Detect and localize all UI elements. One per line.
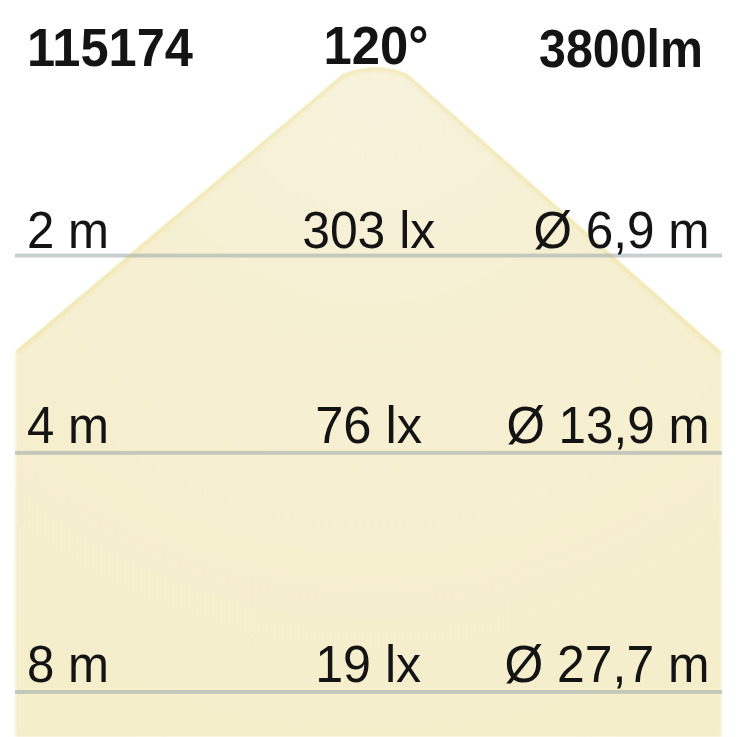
svg-text:Ø 13,9 m: Ø 13,9 m	[507, 396, 710, 454]
svg-text:76 lx: 76 lx	[315, 396, 422, 454]
svg-text:2 m: 2 m	[27, 201, 109, 259]
svg-text:Ø 27,7 m: Ø 27,7 m	[505, 635, 710, 693]
svg-text:4 m: 4 m	[27, 396, 109, 454]
svg-text:8 m: 8 m	[27, 635, 109, 693]
svg-text:3800lm: 3800lm	[539, 19, 703, 78]
svg-text:120°: 120°	[324, 16, 429, 75]
svg-text:303 lx: 303 lx	[302, 201, 435, 259]
svg-text:Ø 6,9 m: Ø 6,9 m	[534, 201, 710, 259]
svg-text:115174: 115174	[27, 18, 193, 77]
svg-text:19 lx: 19 lx	[315, 635, 421, 693]
